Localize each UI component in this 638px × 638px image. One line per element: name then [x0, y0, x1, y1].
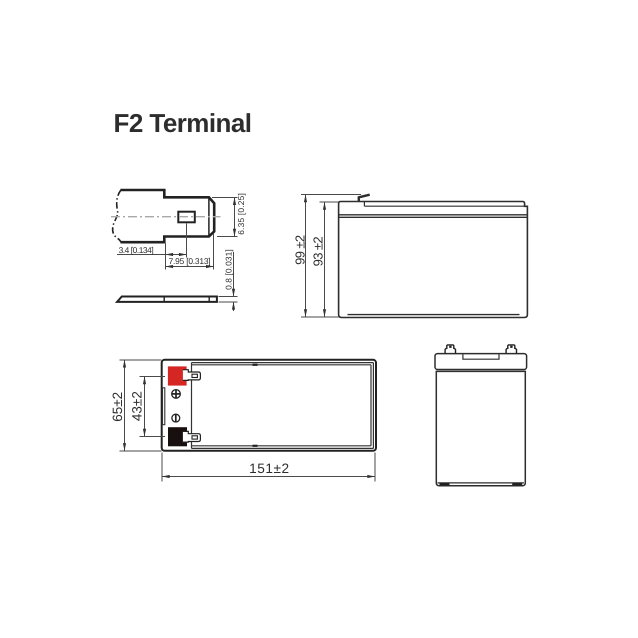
- svg-text:99 ±2: 99 ±2: [293, 235, 308, 265]
- svg-text:0.8 [0.031]: 0.8 [0.031]: [224, 249, 234, 290]
- svg-text:43±2: 43±2: [129, 391, 144, 421]
- svg-text:6.35 [0.25]: 6.35 [0.25]: [236, 193, 246, 235]
- svg-text:3.4 [0.134]: 3.4 [0.134]: [119, 245, 154, 255]
- svg-text:151±2: 151±2: [249, 461, 289, 476]
- svg-text:F2 Terminal: F2 Terminal: [114, 108, 252, 138]
- svg-text:7.95 [0.313]: 7.95 [0.313]: [169, 256, 211, 266]
- svg-text:93 ±2: 93 ±2: [310, 237, 325, 267]
- svg-text:65±2: 65±2: [110, 392, 125, 422]
